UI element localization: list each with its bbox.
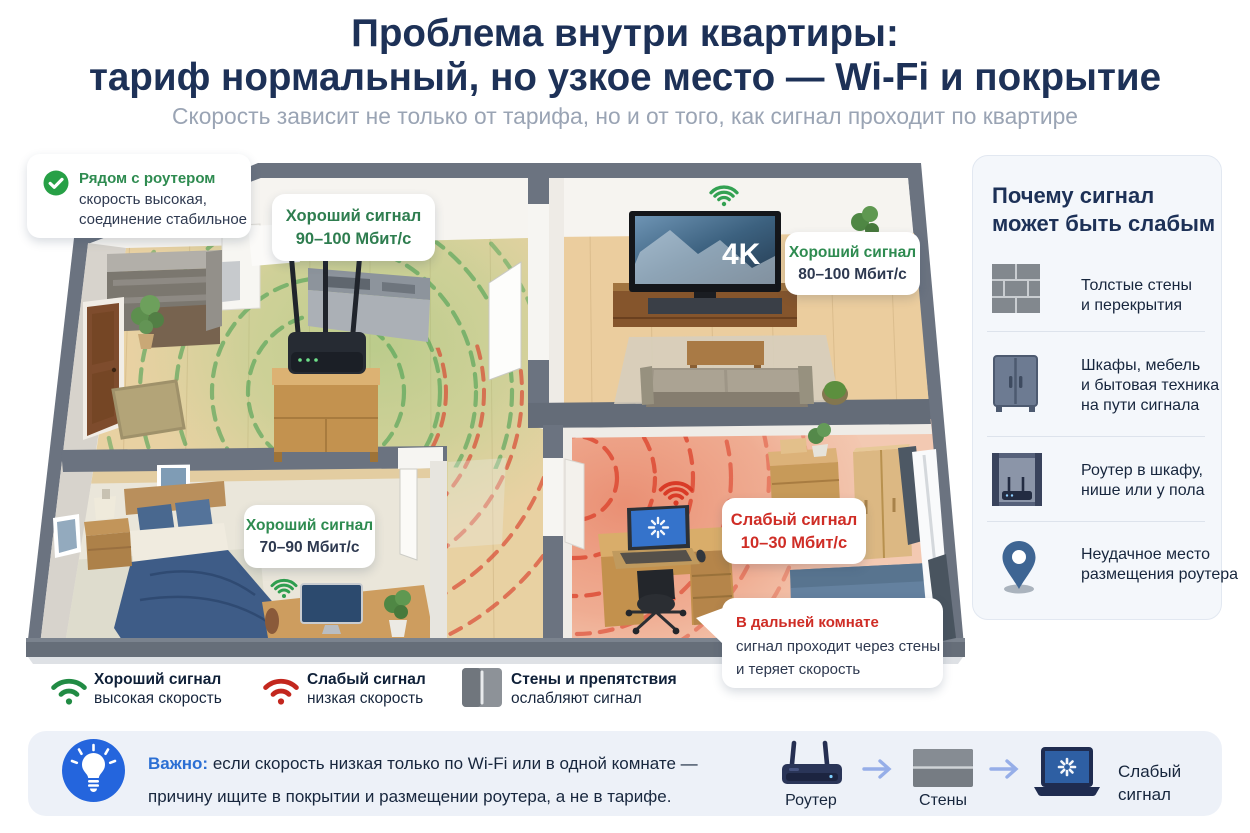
svg-text:4K: 4K xyxy=(722,238,761,271)
